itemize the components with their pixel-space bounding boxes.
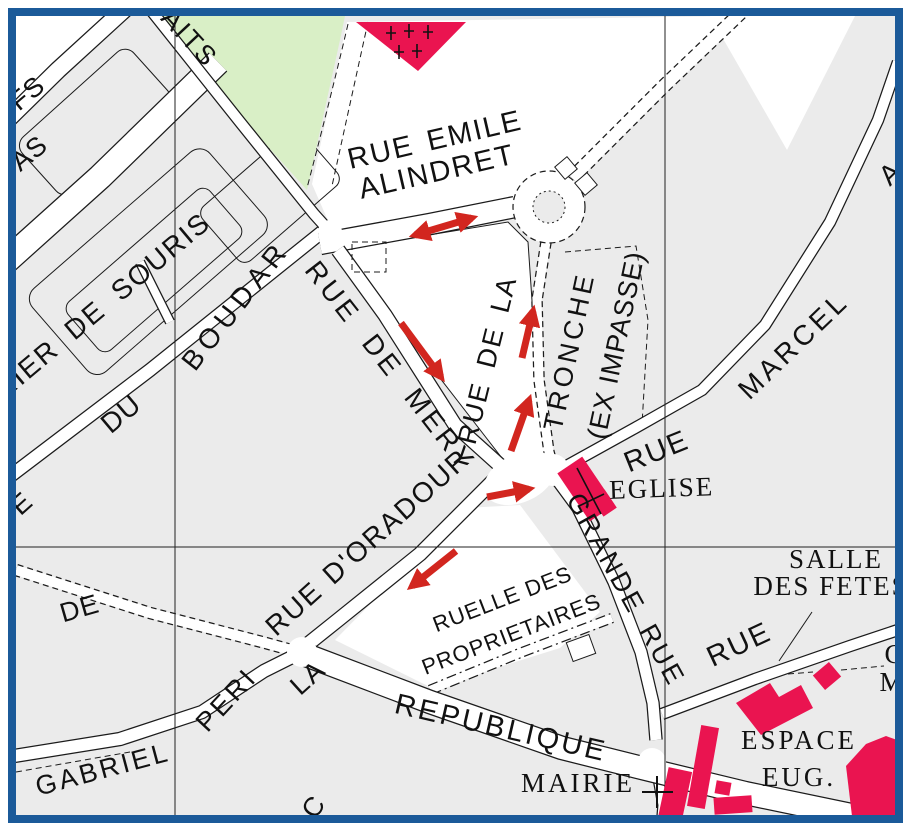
label-mairie: MAIRIE [521,768,635,798]
espace-foot-building [713,795,752,815]
map-content: AITSFSASRUE EMILEALINDRETRIER DE SOURISD… [0,3,909,830]
label-salle: SALLE [789,544,883,574]
label-eglise: EGLISE [609,471,715,505]
map-canvas: AITSFSASRUE EMILEALINDRETRIER DE SOURISD… [0,0,915,835]
espace-small-building [714,780,731,795]
label-des-fetes: DES FETES [753,571,908,601]
label-espace: ESPACE [741,725,857,755]
map-document: AITSFSASRUE EMILEALINDRETRIER DE SOURISD… [0,0,915,835]
label-eug: EUG. [762,762,836,792]
